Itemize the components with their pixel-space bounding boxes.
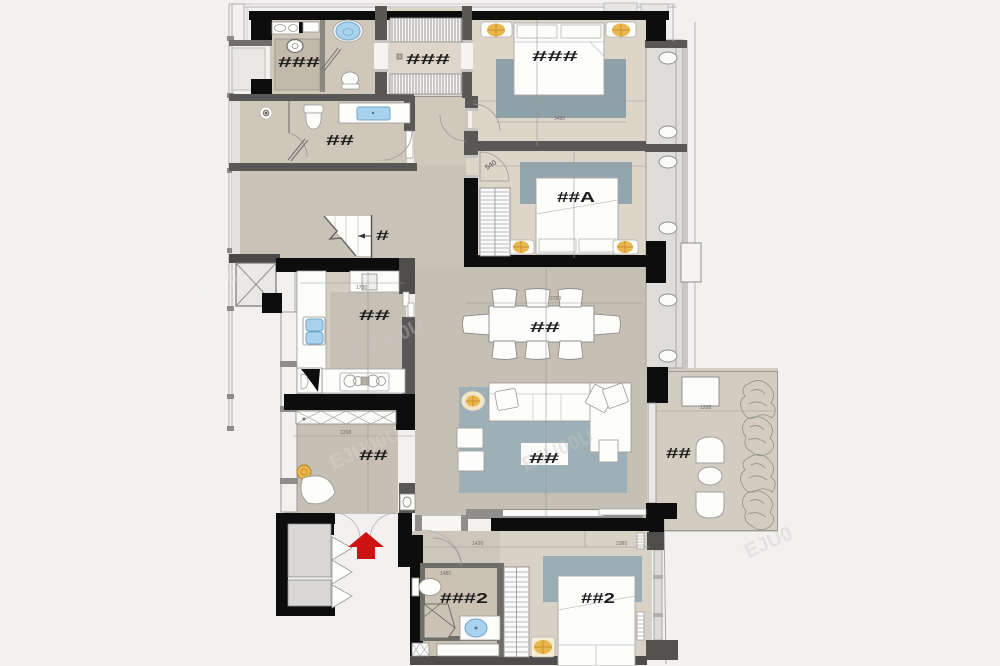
svg-text:###: ### (278, 54, 321, 71)
svg-text:1430: 1430 (472, 541, 483, 547)
svg-text:##: ## (359, 307, 391, 324)
svg-text:##: ## (359, 447, 389, 464)
svg-text:###: ### (532, 48, 579, 65)
svg-text:3480: 3480 (554, 116, 565, 122)
svg-text:1208: 1208 (700, 405, 711, 411)
svg-text:##: ## (529, 450, 560, 467)
svg-text:##: ## (530, 319, 561, 336)
svg-text:###2: ###2 (440, 590, 488, 607)
svg-text:1480: 1480 (440, 571, 451, 577)
svg-text:1208: 1208 (340, 430, 351, 436)
svg-text:2750: 2750 (550, 296, 561, 302)
svg-text:###: ### (406, 51, 451, 68)
svg-text:##: ## (326, 132, 355, 149)
svg-text:##2: ##2 (581, 590, 615, 607)
svg-text:1730: 1730 (356, 285, 367, 291)
svg-text:##: ## (666, 445, 692, 462)
svg-text:2380: 2380 (616, 541, 627, 547)
svg-text:##A: ##A (557, 189, 595, 206)
svg-text:#: # (376, 227, 389, 243)
